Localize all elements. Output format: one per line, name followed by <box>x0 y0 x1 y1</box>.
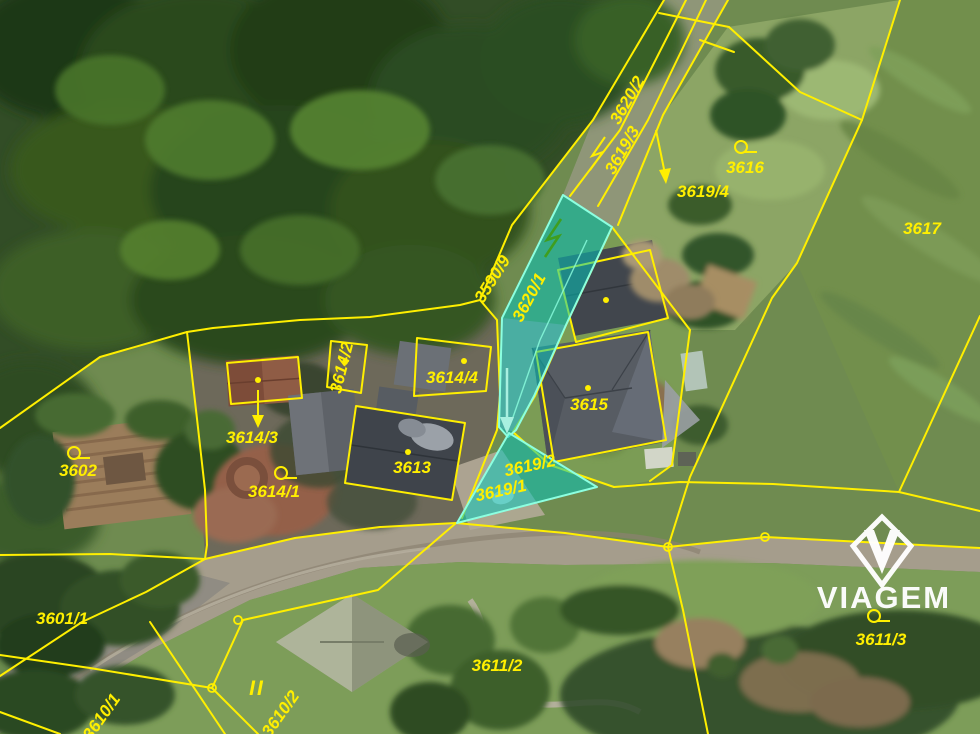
parcel-label-3601-1: 3601/1 <box>36 609 88 628</box>
aerial-photo-layer <box>0 0 980 734</box>
parcel-label-3615: 3615 <box>570 395 608 414</box>
parcel-label-3616: 3616 <box>726 158 764 177</box>
parcel-label-3614-1: 3614/1 <box>248 482 300 501</box>
parcel-label-3614-3: 3614/3 <box>226 428 279 447</box>
shed-dark <box>678 452 696 466</box>
parcel-label-3619-4: 3619/4 <box>677 182 730 201</box>
parcel-label-3614-4: 3614/4 <box>426 368 479 387</box>
parcel-label-3613: 3613 <box>393 458 431 477</box>
cadastral-map-view: 3620/2 3619/3 3616 3619/4 3617 3590/9 36… <box>0 0 980 734</box>
parcel-label-3611-2: 3611/2 <box>472 656 523 675</box>
parcel-label-3617: 3617 <box>903 219 942 238</box>
viagem-brand-text: VIAGEM <box>817 580 951 615</box>
parcel-label-3611-3: 3611/3 <box>856 630 907 649</box>
road-class-marking: II <box>249 677 265 700</box>
parcel-label-3602: 3602 <box>59 461 97 480</box>
map-canvas: 3620/2 3619/3 3616 3619/4 3617 3590/9 36… <box>0 0 980 734</box>
